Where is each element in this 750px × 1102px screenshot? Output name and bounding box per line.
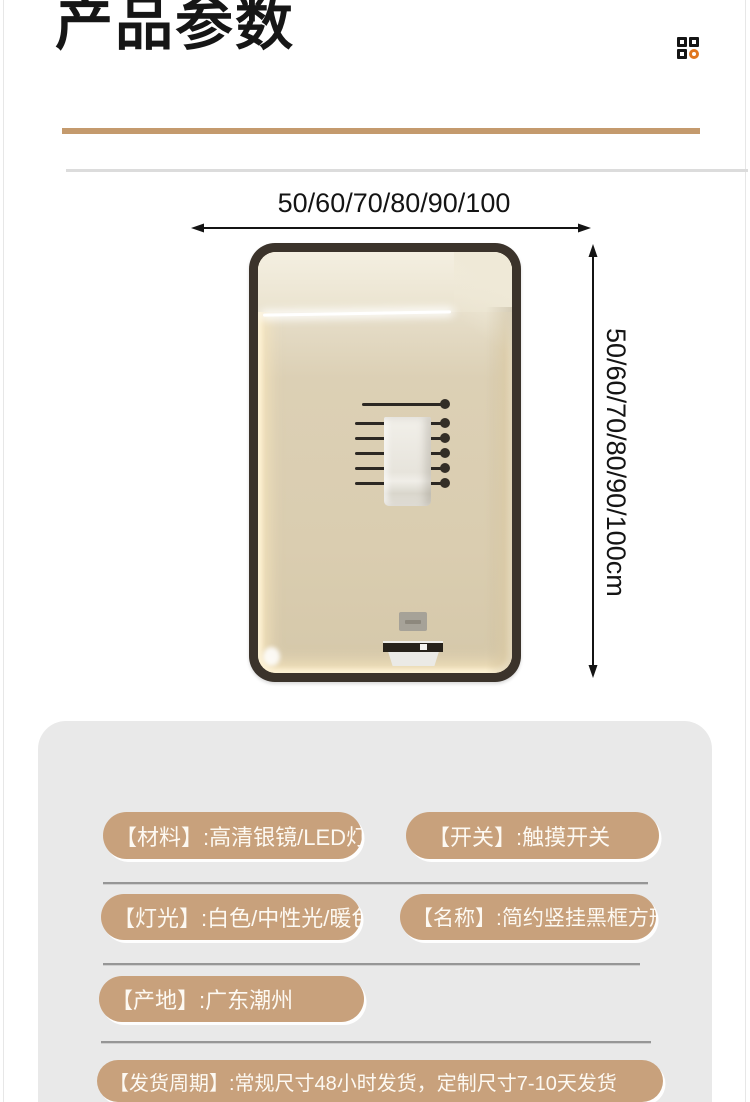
param-pill-delivery: 【发货周期】:常规尺寸48小时发货，定制尺寸7-10天发货 xyxy=(97,1060,663,1102)
towel-rack-knob xyxy=(440,399,450,409)
towel-rack-knob xyxy=(440,433,450,443)
towel-rack-bar xyxy=(362,403,444,406)
towel-rack-knob xyxy=(440,463,450,473)
param-pill-origin: 【产地】:广东潮州 xyxy=(99,976,364,1022)
param-pill-light: 【灯光】:白色/中性光/暖色 xyxy=(101,894,361,940)
product-parameters-page: 产品参数 50/60/70/80/90/100 xyxy=(0,0,750,1102)
pill-row-divider xyxy=(103,882,648,884)
left-border-line xyxy=(3,0,4,1102)
towel-rack-knob xyxy=(440,418,450,428)
right-wall-shade xyxy=(486,307,512,673)
sub-divider xyxy=(66,169,748,172)
height-dimension-label: 50/60/70/80/90/100cm xyxy=(600,328,631,597)
washing-machine-top xyxy=(383,641,443,652)
led-reflection-glow xyxy=(263,647,280,666)
washing-machine-body xyxy=(386,652,441,666)
mirror-product-image xyxy=(249,243,521,682)
grid-scan-icon xyxy=(677,37,701,60)
width-arrow-icon xyxy=(191,220,591,236)
width-dimension-label: 50/60/70/80/90/100 xyxy=(254,188,534,219)
page-title: 产品参数 xyxy=(55,0,295,61)
param-pill-switch: 【开关】:触摸开关 xyxy=(406,812,659,859)
pill-row-divider xyxy=(101,1041,651,1043)
grid-square-icon xyxy=(689,37,699,47)
right-border-line xyxy=(745,0,746,1102)
towel xyxy=(384,417,431,506)
towel-rack-knob xyxy=(440,448,450,458)
grid-circle-icon xyxy=(689,49,699,59)
height-arrow-icon xyxy=(586,244,600,678)
wall-switch xyxy=(399,612,427,631)
mirror-reflection xyxy=(258,252,512,673)
param-pill-name: 【名称】:简约竖挂黑框方形 xyxy=(400,894,656,940)
param-pill-material: 【材料】:高清银镜/LED灯 xyxy=(103,812,362,859)
grid-square-icon xyxy=(677,37,687,47)
grid-square-icon xyxy=(677,49,687,59)
pill-row-divider xyxy=(103,963,640,965)
towel-rack-knob xyxy=(440,478,450,488)
accent-divider xyxy=(62,128,700,134)
